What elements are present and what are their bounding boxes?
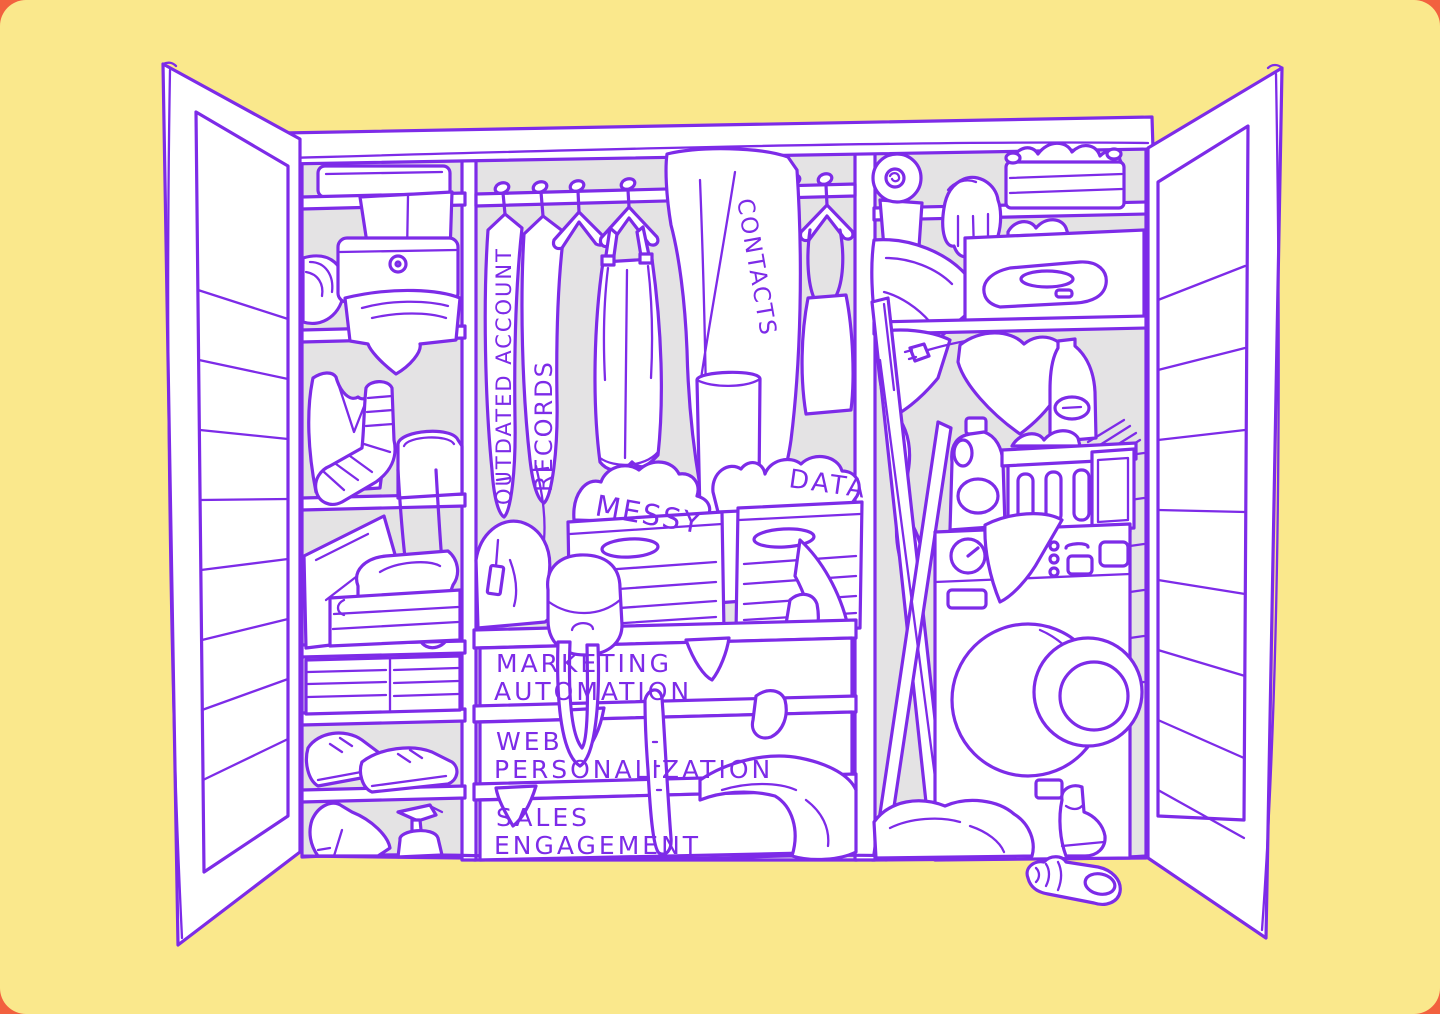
washer-drawer [948, 590, 986, 608]
yellow-card-background: OUTDATED ACCOUNT RECORDS [0, 0, 1440, 1014]
clutch-button [390, 256, 406, 272]
label-web: WEB [496, 727, 563, 756]
basket-body [1006, 162, 1124, 208]
handbag-body [548, 555, 622, 655]
hanger-stem [628, 190, 629, 207]
divider-post-left [462, 157, 476, 860]
label-outdated-account: OUTDATED ACCOUNT [492, 247, 516, 505]
right-door [1148, 65, 1282, 938]
basket-handle-left [1006, 153, 1020, 163]
iron-box [965, 220, 1144, 324]
label-sales: SALES [496, 803, 590, 832]
label-engagement: ENGAGEMENT [494, 831, 701, 860]
sock-on-floor [1027, 857, 1120, 905]
basket-handle-right [1107, 149, 1121, 159]
price-tag [487, 565, 504, 595]
right-door-panel [1148, 68, 1282, 938]
boxed-iron [984, 262, 1106, 307]
jug-body [950, 432, 1005, 530]
left-door-panel [163, 64, 300, 945]
left-door [163, 63, 300, 945]
top-basket [1006, 143, 1124, 208]
buckle-right [640, 254, 652, 263]
hanger-stem [541, 192, 543, 216]
linen-stack [306, 656, 460, 714]
label-marketing: MARKETING [496, 649, 672, 678]
cloth-pile [874, 800, 1033, 858]
washer-door-latch [1036, 780, 1062, 798]
hanger-stem [826, 185, 827, 205]
hanger-stem [503, 193, 505, 214]
messy-closet-illustration: OUTDATED ACCOUNT RECORDS [0, 0, 1440, 1014]
label-automation: AUTOMATION [494, 677, 692, 706]
buckle-left [602, 256, 614, 265]
label-personalization: PERSONALIZATION [494, 755, 773, 784]
tote-body [802, 295, 853, 414]
label-records: RECORDS [530, 360, 558, 492]
folded-towel-stack [330, 590, 460, 646]
